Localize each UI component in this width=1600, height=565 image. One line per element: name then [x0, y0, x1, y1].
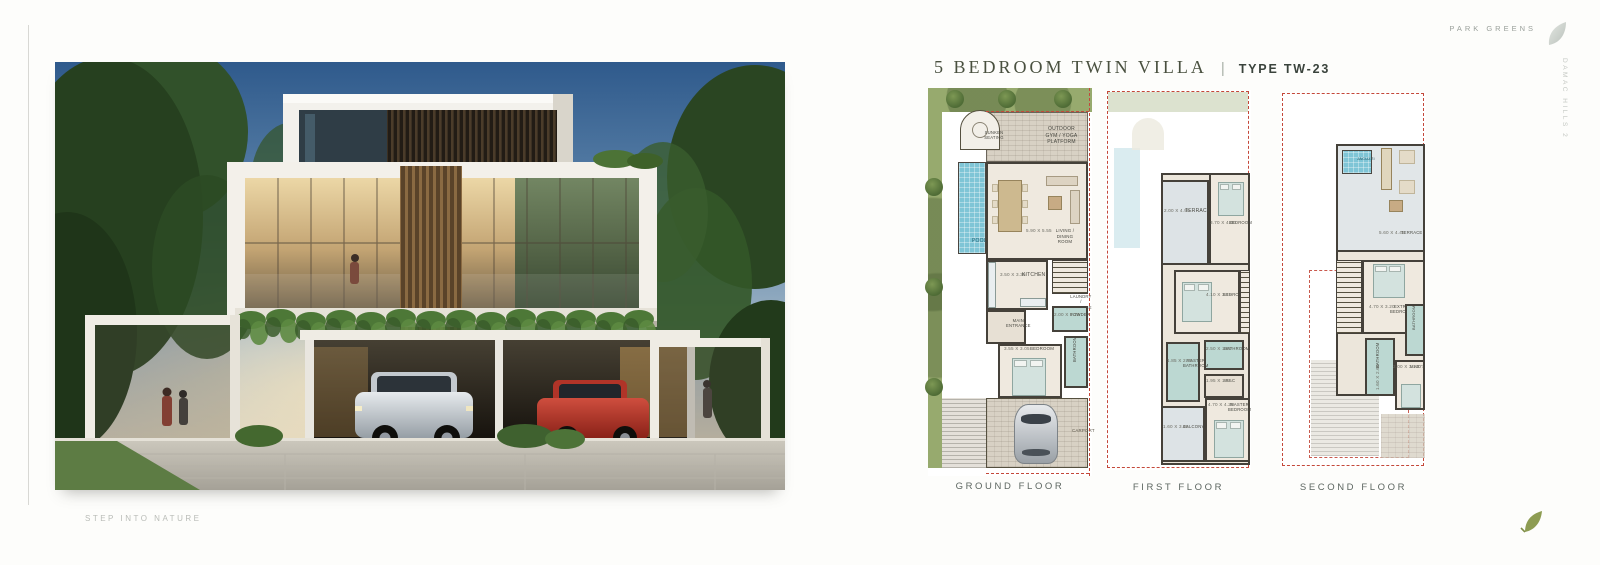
tree-symbol	[925, 278, 943, 296]
room-dims: 1.60 X 3.45	[1163, 424, 1189, 430]
car-top-view	[1014, 404, 1058, 464]
room-label: LIVING / DINING ROOM	[1052, 228, 1078, 245]
floor-label-first: FIRST FLOOR	[1106, 482, 1251, 493]
room-dims: 4.10 X 3.15	[1206, 292, 1232, 298]
driveway-hatch	[942, 398, 986, 468]
tree-symbol	[925, 178, 943, 196]
brochure-page: { "brand": { "name": "PARK GREENS", "sid…	[0, 0, 1600, 565]
tree-symbol	[946, 90, 964, 108]
room-master-bathroom	[1166, 342, 1200, 402]
staircase	[1052, 260, 1088, 294]
side-community-text: DAMAC HILLS 2	[1561, 58, 1568, 178]
room-dims: 3.70 X 4.00	[1210, 220, 1236, 226]
title-type: TYPE TW-23	[1239, 62, 1330, 76]
twin-boundary-dash	[1089, 88, 1090, 476]
leaf-icon	[1544, 20, 1570, 48]
coffee-table	[1048, 196, 1062, 210]
title-separator: |	[1221, 60, 1225, 77]
kitchen-counter	[1020, 298, 1046, 307]
page-title: 5 BEDROOM TWIN VILLA | TYPE TW-23	[934, 57, 1330, 78]
room-dims: 1.95 X 1.85	[1206, 378, 1232, 384]
leaf-icon	[1519, 509, 1545, 535]
floor-label-ground: GROUND FLOOR	[928, 481, 1092, 492]
person-balcony	[351, 254, 359, 262]
room-dims: 1.85 X 2.75	[1167, 358, 1193, 364]
floor-label-second: SECOND FLOOR	[1281, 482, 1426, 493]
room-dims: 2.00 X 1.20	[1054, 312, 1080, 318]
room-label: BATHROOM	[1072, 337, 1077, 362]
room-dims: 4.70 X 4.25	[1208, 402, 1234, 408]
lounger	[1381, 148, 1392, 190]
floor-plan-second: JACUZZI TERRACE 5.60 X 4.45 EXTRA BEDROO…	[1281, 92, 1426, 468]
room-label: SUNKEN SEATING	[980, 130, 1008, 141]
staircase	[1240, 270, 1250, 334]
room-dims: 2.00 X 4.90	[1164, 208, 1190, 214]
room-dims: 4.70 X 3.20	[1369, 304, 1395, 310]
room-powder	[1052, 306, 1088, 332]
terrace-pavers	[1381, 414, 1425, 458]
room-dims: 3.55 X 3.05	[1004, 346, 1030, 352]
room-label: POOL	[972, 238, 987, 245]
room-dims: 2.50 X 1.60	[1206, 346, 1232, 352]
room-bathroom-first	[1204, 340, 1244, 370]
twin-boundary-dash	[986, 111, 1089, 112]
dining-table	[998, 180, 1022, 232]
room-label: JACUZZI	[1357, 156, 1375, 161]
pool-ghost	[1114, 148, 1140, 248]
kitchen-counter	[988, 262, 996, 308]
villa-illustration	[55, 62, 785, 490]
room-label: BEDROOM	[1030, 346, 1054, 352]
room-label: OUTDOOR GYM / YOGA PLATFORM	[1043, 126, 1080, 146]
floor-plan-ground: OUTDOOR GYM / YOGA PLATFORM SUNKEN SEATI…	[928, 88, 1092, 476]
room-terrace-first	[1161, 180, 1209, 265]
room-jacuzzi	[1342, 150, 1372, 174]
room-dims: 3.50 X 3.35	[1000, 272, 1026, 278]
arch-ghost	[1132, 118, 1164, 150]
twin-boundary-dash	[986, 473, 1089, 474]
title-main: 5 BEDROOM TWIN VILLA	[934, 57, 1207, 78]
tree-symbol	[1054, 90, 1072, 108]
left-rule	[28, 25, 29, 505]
room-label: BATHROOM	[1411, 306, 1416, 330]
room-dims: 1.60 X 2.60	[1375, 364, 1381, 390]
room-dims: 5.60 X 4.45	[1379, 230, 1405, 236]
sofa	[1070, 190, 1080, 224]
room-dims: 2.00 X 3.10	[1393, 364, 1419, 370]
room-dims: 5.90 X 5.55	[1026, 228, 1052, 234]
villa-exterior-rendering	[55, 62, 785, 490]
floor-plan-first: TERRACE 2.00 X 4.90 BEDROOM 3.70 X 4.00 …	[1106, 90, 1251, 470]
room-balcony	[1161, 406, 1205, 462]
tree-symbol	[998, 90, 1016, 108]
bed	[1401, 384, 1421, 408]
tagline: STEP INTO NATURE	[85, 514, 201, 523]
garden-ghost	[1108, 92, 1248, 112]
tree-symbol	[925, 378, 943, 396]
pergola-left	[85, 315, 240, 450]
brand-name: PARK GREENS	[1449, 24, 1536, 33]
staircase	[1336, 260, 1362, 334]
sofa	[1046, 176, 1078, 186]
room-label: CARPORT	[1072, 428, 1095, 434]
room-label: MAIN ENTRANCE	[1006, 318, 1031, 329]
pergola-right	[650, 338, 770, 450]
